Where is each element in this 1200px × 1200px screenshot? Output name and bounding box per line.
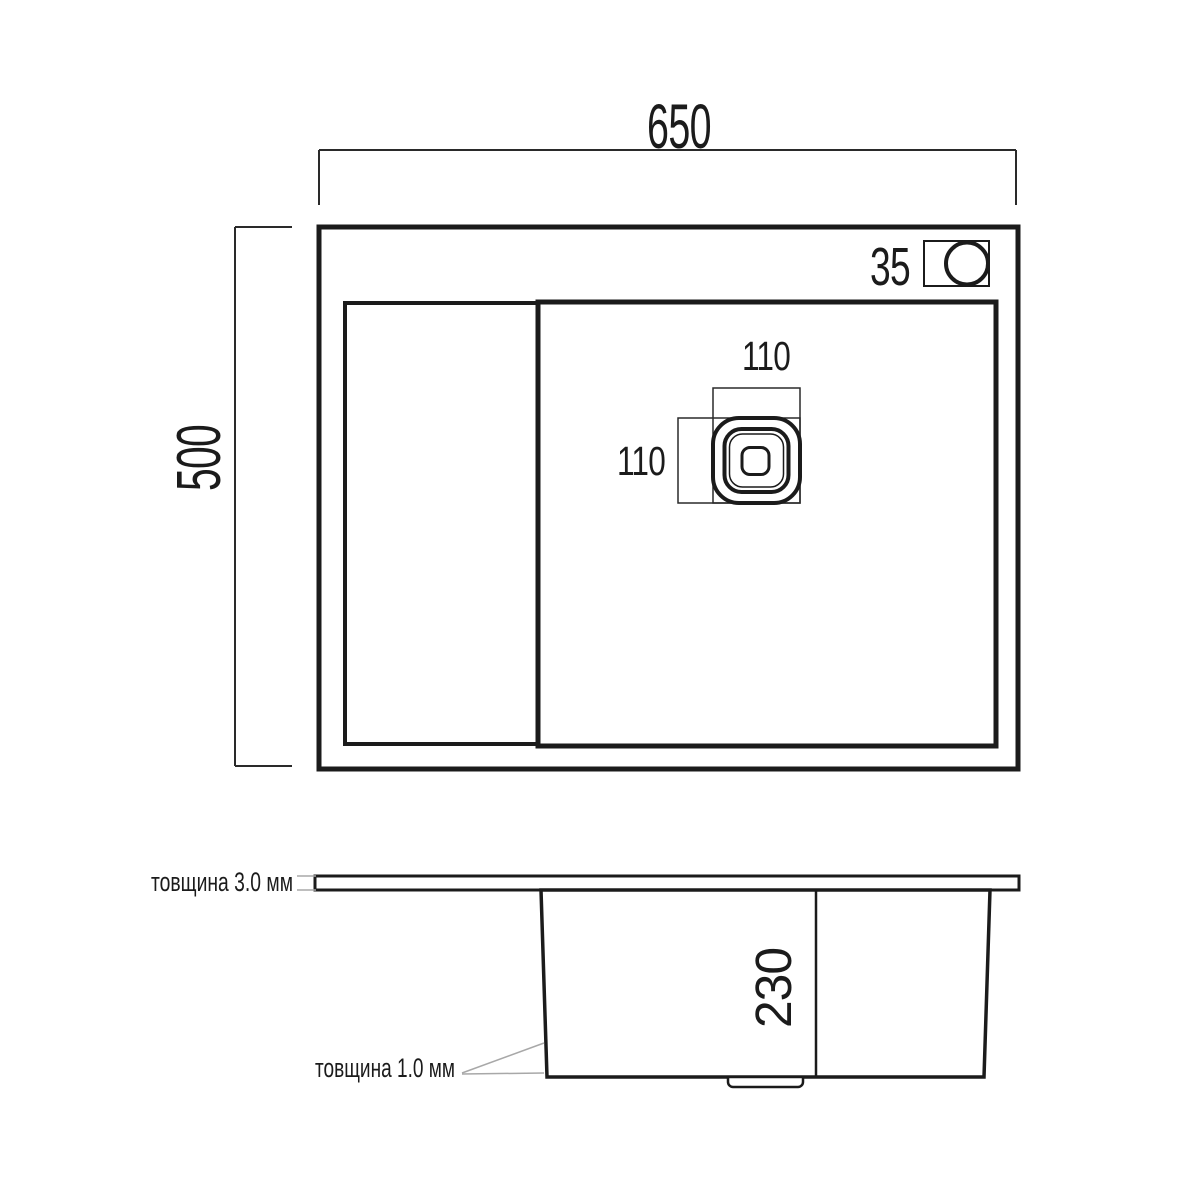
drainboard-section xyxy=(345,303,538,744)
wall-thickness-label: товщина 1.0 мм xyxy=(315,1053,455,1083)
drain-height-dimension-value: 110 xyxy=(617,438,665,484)
bowl-depth-dimension-value: 230 xyxy=(745,948,802,1028)
wall-thickness-callout: товщина 1.0 мм xyxy=(315,1043,544,1083)
drain-width-dimension-value: 110 xyxy=(742,333,790,379)
faucet-hole: 35 xyxy=(870,237,989,297)
rim-thickness-callout: товщина 3.0 мм xyxy=(151,867,316,897)
drain-assembly xyxy=(713,418,800,503)
sink-technical-drawing: 650 500 35 110 110 xyxy=(0,0,1200,1200)
rim-thickness-label: товщина 3.0 мм xyxy=(151,867,293,897)
drain-fitting xyxy=(728,1077,803,1087)
side-view: товщина 3.0 мм 230 товщина 1.0 мм xyxy=(151,867,1019,1087)
width-dimension-value: 650 xyxy=(647,92,711,162)
wall-thickness-leader-upper xyxy=(462,1043,544,1073)
top-view: 650 500 35 110 110 xyxy=(165,92,1018,769)
rim-plate xyxy=(315,876,1019,890)
drain-inner-flange xyxy=(725,429,789,492)
depth-dimension xyxy=(235,227,292,766)
sink-outer-edge xyxy=(319,227,1018,769)
faucet-hole-dimension-value: 35 xyxy=(870,237,910,297)
faucet-hole-circle xyxy=(946,243,988,285)
depth-dimension-value: 500 xyxy=(165,425,234,491)
wall-thickness-leader-lower xyxy=(462,1073,544,1074)
